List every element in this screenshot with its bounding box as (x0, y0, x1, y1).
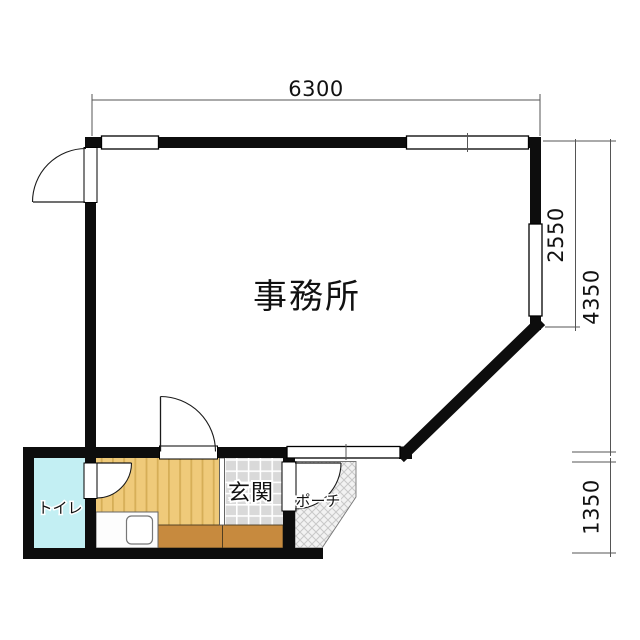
office-label: 事務所 (253, 277, 361, 317)
floor-plan-svg: 6300 2550 4350 1350 事務所 トイレ 玄関 ポーチ (0, 0, 640, 640)
toilet-door-opening (84, 463, 97, 499)
window-right-wall (529, 224, 542, 316)
window-top-left (102, 136, 159, 149)
dim-top-value: 6300 (288, 77, 343, 101)
wall-diagonal (404, 325, 537, 454)
hall-step-cabinet (158, 525, 223, 548)
toilet-label: トイレ (37, 499, 82, 517)
kitchen-sink (127, 516, 153, 544)
porch-label: ポーチ (295, 492, 340, 510)
entrance-label: 玄関 (228, 481, 274, 506)
exterior-door-arc (33, 149, 87, 203)
dim-right-total-value: 4350 (580, 269, 604, 324)
entrance-door-opening (282, 462, 296, 511)
wall-office-bottom (23, 447, 290, 458)
office-door-opening (160, 446, 218, 459)
dim-right-upper-value: 2550 (544, 207, 568, 262)
entrance-step-cabinet (223, 525, 284, 548)
exterior-door-opening (84, 148, 97, 203)
office-door-arc (161, 397, 216, 452)
window-above-porch (287, 447, 400, 459)
dim-bottom-right-value: 1350 (580, 479, 604, 534)
wall-corner-block (399, 447, 412, 460)
hall-entrance-partition (220, 458, 225, 525)
wall-bottom (23, 548, 323, 559)
wall-toilet-left (23, 447, 34, 559)
floor-plan-page: 6300 2550 4350 1350 事務所 トイレ 玄関 ポーチ (0, 0, 640, 640)
